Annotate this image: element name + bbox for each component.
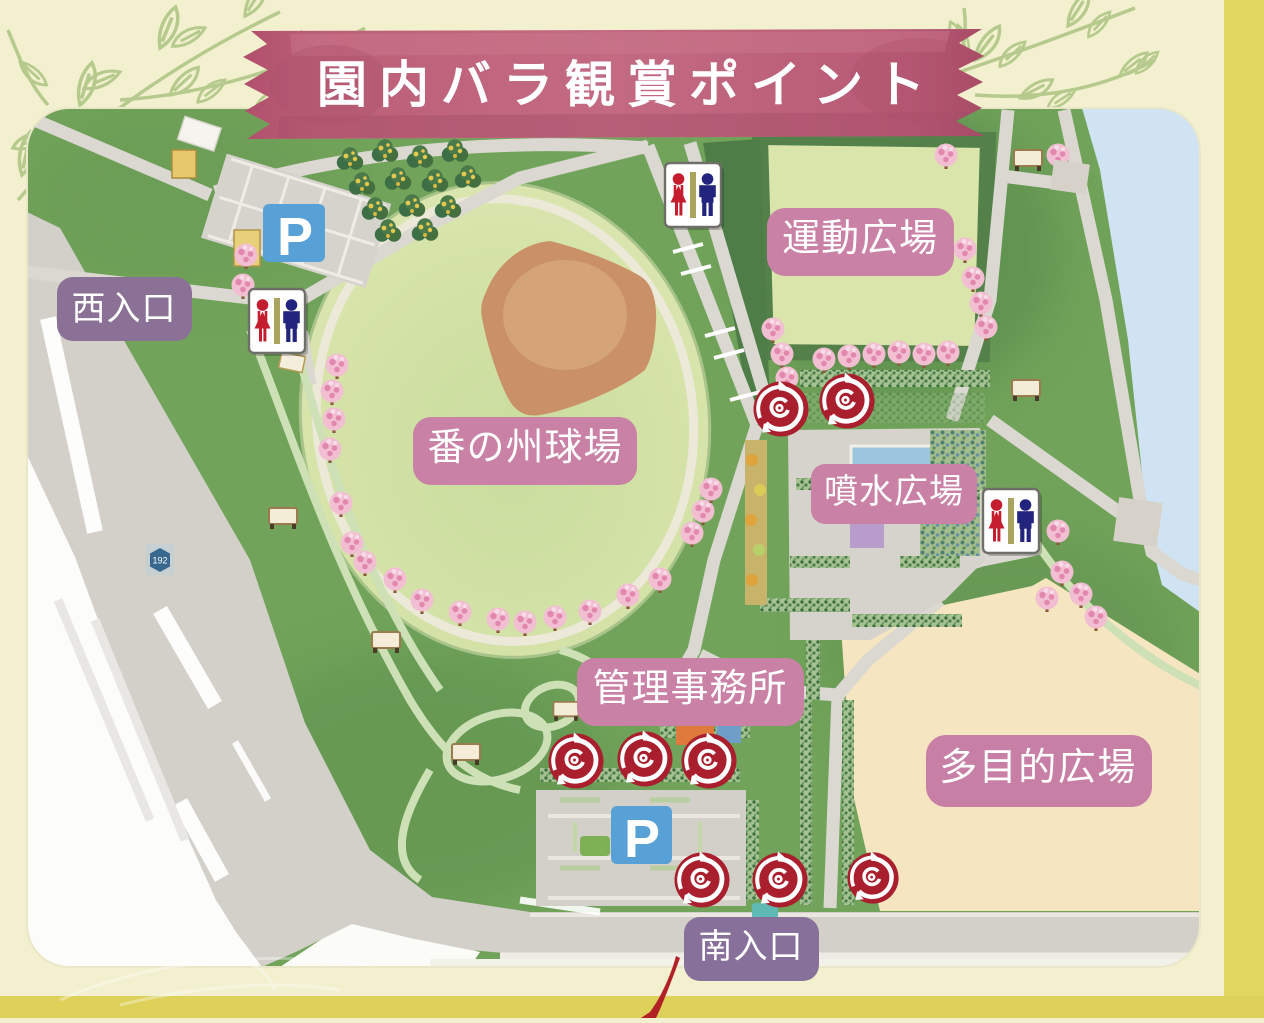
- svg-text:噴水広場: 噴水広場: [824, 473, 964, 511]
- svg-text:運動広場: 運動広場: [782, 218, 938, 260]
- svg-text:園内バラ観賞ポイント: 園内バラ観賞ポイント: [317, 57, 937, 113]
- svg-text:西入口: 西入口: [72, 290, 177, 328]
- svg-text:南入口: 南入口: [699, 928, 804, 966]
- svg-text:管理事務所: 管理事務所: [592, 668, 787, 710]
- svg-text:P: P: [277, 207, 313, 267]
- svg-text:P: P: [624, 809, 660, 869]
- svg-text:番の州球場: 番の州球場: [427, 427, 622, 469]
- svg-text:多目的広場: 多目的広場: [939, 747, 1137, 789]
- svg-text:192: 192: [152, 556, 167, 566]
